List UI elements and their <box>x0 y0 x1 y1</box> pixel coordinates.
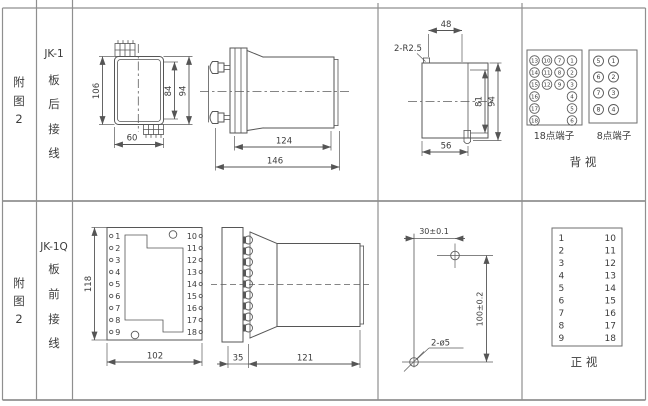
terminal-number: 16 <box>187 304 197 313</box>
terminal-8pt: 5 1 6 2 7 3 8 4 8点端子 <box>589 50 637 142</box>
side-view-terminal-column <box>243 236 253 332</box>
dim-label-30: 30±0.1 <box>419 227 449 236</box>
table-cell: 11 <box>605 247 616 257</box>
terminal-number: 17 <box>187 316 197 325</box>
table-cell: 8 <box>559 322 565 332</box>
dim-label-118: 118 <box>84 276 94 292</box>
terminal-number: 14 <box>531 71 539 77</box>
terminal-number: 12 <box>543 83 550 89</box>
terminal-number: 2 <box>115 244 120 253</box>
terminal-number: 10 <box>187 232 197 241</box>
model-name: JK-1Q <box>39 241 68 253</box>
terminal-number: 13 <box>531 59 539 65</box>
dim-label-124: 124 <box>276 137 292 147</box>
terminal-table-right-column: 10 11 12 13 14 15 16 17 18 <box>605 234 617 344</box>
fig-char: 2 <box>15 312 22 326</box>
technical-drawing-page: 附 图 2 JK-1 板 后 接 线 <box>0 0 648 406</box>
wiring-char: 后 <box>48 97 60 111</box>
dim-label-106: 106 <box>92 83 102 99</box>
dim-label-56: 56 <box>441 142 452 152</box>
terminal-number: 3 <box>115 256 120 265</box>
terminal-number: 5 <box>570 107 574 113</box>
terminal-number: 6 <box>570 119 574 125</box>
wiring-char: 线 <box>48 146 60 160</box>
hole-note: 2-ø5 <box>431 339 450 349</box>
dim-label-48: 48 <box>441 20 452 30</box>
fig-char: 2 <box>15 112 22 126</box>
terminal-number: 4 <box>115 268 120 277</box>
dim-label-81: 81 <box>475 96 485 107</box>
mounting-hole <box>131 331 139 339</box>
terminal-number: 12 <box>187 256 197 265</box>
mounting-hole <box>169 231 177 239</box>
terminal-number: 13 <box>187 268 197 277</box>
table-cell: 14 <box>605 284 617 294</box>
row1-view-name: 背 视 <box>570 155 597 169</box>
dim-label-35: 35 <box>233 354 244 364</box>
table-cell: 4 <box>559 272 565 282</box>
terminal-number: 6 <box>115 292 120 301</box>
dim-label-94: 94 <box>179 86 189 97</box>
terminal-number: 17 <box>531 107 539 113</box>
terminal-number: 18 <box>187 328 197 337</box>
row1-front-view: 106 84 94 60 <box>92 41 193 149</box>
fig-char: 附 <box>13 75 25 89</box>
terminal-8pt-grid: 5 1 6 2 7 3 8 4 <box>594 56 619 115</box>
terminal-18pt: 13 10 7 1 14 11 8 2 15 12 9 3 16 4 17 5 … <box>527 50 582 142</box>
dim-label-94b: 94 <box>488 96 498 107</box>
terminal-number: 9 <box>115 328 120 337</box>
row2-front-view: 1 2 3 4 5 6 7 8 9 10 11 12 13 14 15 16 1… <box>84 228 203 367</box>
terminal-number: 1 <box>612 58 616 65</box>
table-cell: 1 <box>559 234 565 244</box>
dim-label-84: 84 <box>164 86 174 97</box>
terminal-number: 15 <box>187 292 197 301</box>
terminal-8pt-label: 8点端子 <box>597 130 632 142</box>
wiring-char: 前 <box>48 287 60 301</box>
terminal-number: 5 <box>597 58 601 65</box>
table-cell: 17 <box>605 322 616 332</box>
front-view-left-terminals: 1 2 3 4 5 6 7 8 9 <box>110 232 121 337</box>
radius-note: 2-R2.5 <box>394 44 422 54</box>
table-cell: 5 <box>559 284 565 294</box>
fig-char: 图 <box>13 94 25 108</box>
table-cell: 3 <box>559 259 565 269</box>
terminal-number: 8 <box>597 107 601 114</box>
table-cell: 10 <box>605 234 617 244</box>
row2-model-label: JK-1Q 板 前 接 线 <box>39 241 68 350</box>
terminal-number: 11 <box>187 244 197 253</box>
table-cell: 9 <box>559 334 565 344</box>
terminal-number: 8 <box>115 316 120 325</box>
row2-fig-label: 附 图 2 <box>13 276 25 326</box>
dim-label-121: 121 <box>297 354 313 364</box>
terminal-number: 8 <box>558 71 562 77</box>
dim-label-102: 102 <box>147 352 163 362</box>
drawing-canvas: 附 图 2 JK-1 板 后 接 线 <box>0 0 648 406</box>
dim-label-146: 146 <box>267 157 283 167</box>
terminal-number: 15 <box>531 83 539 89</box>
terminal-number: 4 <box>570 95 574 101</box>
fig-char: 附 <box>13 276 25 290</box>
row2-terminal-table: 1 2 3 4 5 6 7 8 9 10 11 12 13 14 15 16 1… <box>552 228 622 369</box>
row1-model-label: JK-1 板 后 接 线 <box>43 48 63 160</box>
row2-side-view: 35 121 <box>211 228 372 369</box>
wiring-char: 接 <box>48 312 60 326</box>
front-view-right-terminals: 10 11 12 13 14 15 16 17 18 <box>187 232 203 337</box>
table-cell: 7 <box>559 309 565 319</box>
terminal-number: 4 <box>612 107 616 114</box>
row2-view-name: 正 视 <box>571 355 598 369</box>
terminal-table-left-column: 1 2 3 4 5 6 7 8 9 <box>559 234 565 344</box>
terminal-number: 7 <box>597 90 601 97</box>
terminal-number: 5 <box>115 280 120 289</box>
row1-top-view: 2-R2.5 48 81 94 56 <box>394 20 502 156</box>
table-cell: 2 <box>559 247 565 257</box>
model-name: JK-1 <box>43 48 63 60</box>
terminal-number: 3 <box>612 90 616 97</box>
table-cell: 6 <box>559 297 565 307</box>
wiring-char: 板 <box>48 73 60 87</box>
terminal-18pt-grid: 13 10 7 1 14 11 8 2 15 12 9 3 16 4 17 5 … <box>530 56 577 126</box>
wiring-char: 板 <box>48 262 60 276</box>
table-cell: 15 <box>605 297 616 307</box>
terminal-number: 1 <box>115 232 120 241</box>
wiring-char: 接 <box>48 122 60 136</box>
terminal-number: 16 <box>531 95 539 101</box>
table-cell: 16 <box>605 309 617 319</box>
terminal-number: 2 <box>612 74 616 81</box>
table-cell: 13 <box>605 272 616 282</box>
terminal-number: 14 <box>187 280 197 289</box>
terminal-number: 10 <box>543 59 551 65</box>
dim-label-60: 60 <box>127 134 138 144</box>
terminal-number: 7 <box>558 59 562 65</box>
dim-label-100: 100±0.2 <box>476 292 485 327</box>
terminal-number: 6 <box>597 74 601 81</box>
table-cell: 12 <box>605 259 616 269</box>
row2-drill-view: 30±0.1 100±0.2 2-ø5 <box>402 227 493 372</box>
terminal-number: 9 <box>558 83 562 89</box>
terminal-number: 18 <box>531 119 539 125</box>
row1-fig-label: 附 图 2 <box>13 75 25 126</box>
terminal-number: 3 <box>570 83 574 89</box>
table-cell: 18 <box>605 334 617 344</box>
terminal-18pt-label: 18点端子 <box>534 130 575 142</box>
terminal-number: 7 <box>115 304 120 313</box>
row1-side-view: 124 146 <box>200 48 352 171</box>
wiring-char: 线 <box>48 336 60 350</box>
terminal-number: 11 <box>543 71 551 77</box>
terminal-number: 1 <box>570 59 574 65</box>
terminal-number: 2 <box>570 71 574 77</box>
fig-char: 图 <box>13 294 25 308</box>
